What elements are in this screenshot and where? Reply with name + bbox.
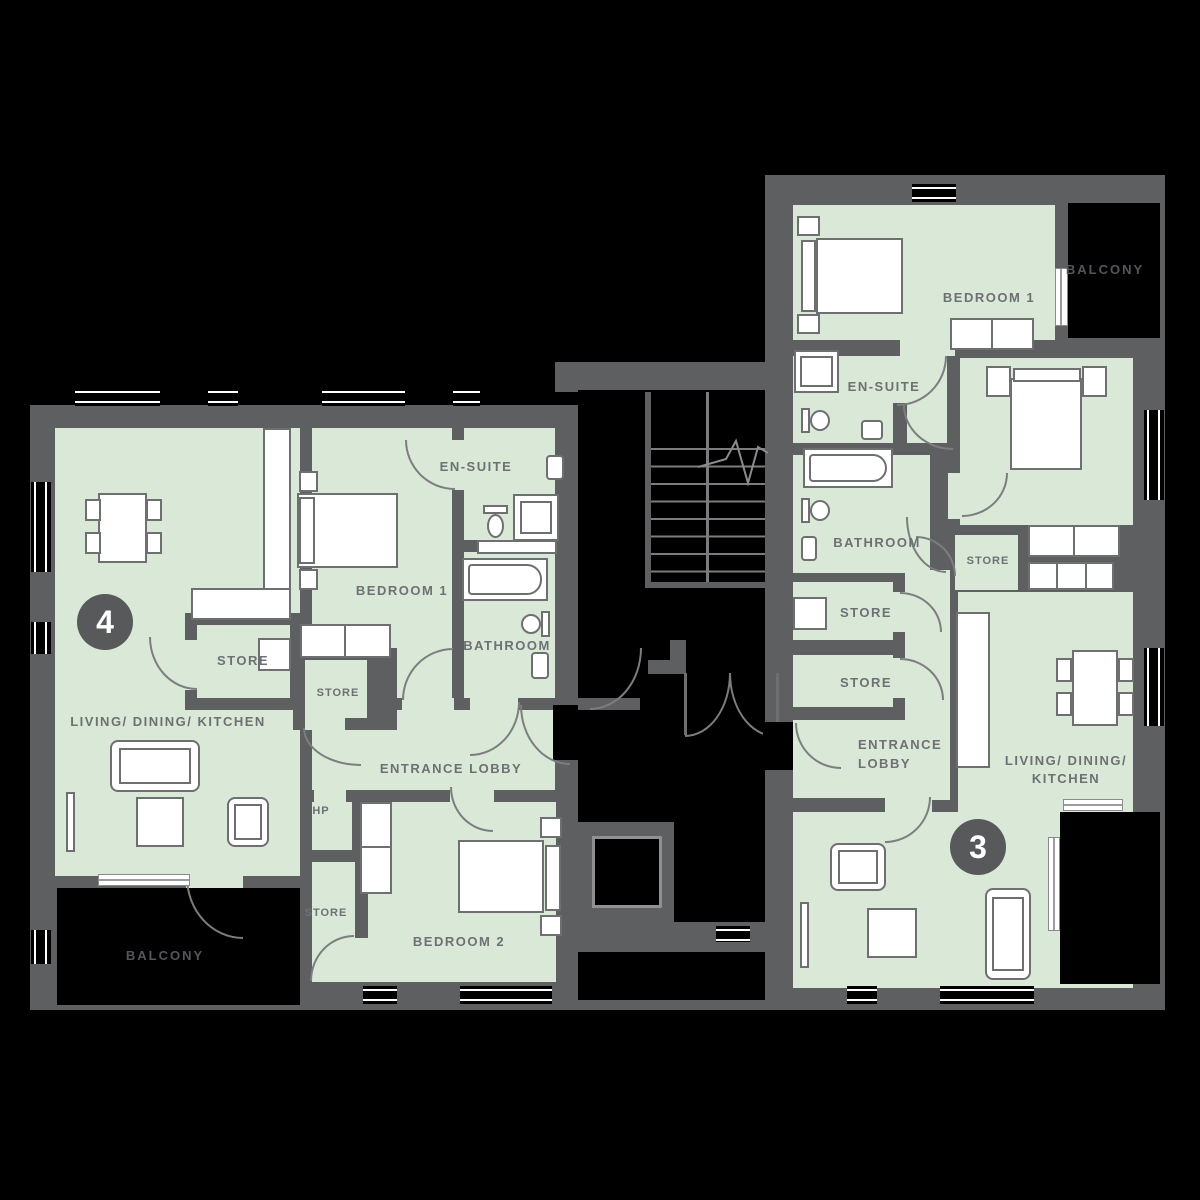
tall-cupboard	[956, 612, 990, 768]
unit-divider	[1085, 564, 1087, 588]
unit-badge-3: 3	[950, 819, 1006, 875]
room-label-bathroom-unit4: BATHROOM	[463, 638, 551, 653]
toilet-bowl	[487, 514, 504, 538]
bedside-table	[1082, 366, 1107, 397]
wall-segment	[648, 660, 686, 674]
bed-pillow	[1013, 368, 1081, 382]
unit-divider	[1056, 564, 1058, 588]
bedside-table	[797, 216, 820, 236]
dining-table	[98, 493, 147, 563]
window	[716, 926, 750, 942]
door-opening	[900, 340, 955, 356]
sink	[531, 652, 549, 679]
door-opening	[355, 938, 368, 982]
sink	[546, 455, 564, 480]
wardrobe-divider	[344, 626, 346, 656]
balcony-unit4	[57, 888, 300, 1005]
glazed-door-sill	[1063, 799, 1123, 811]
sofa-seat	[992, 897, 1024, 971]
unit-badge-4: 4	[77, 594, 133, 650]
double-bed	[458, 840, 544, 913]
bedside-table	[540, 817, 562, 838]
bedside-table	[986, 366, 1011, 397]
room-label-lobby-unit3-line1: ENTRANCE	[858, 737, 942, 752]
bed-pillow	[801, 240, 816, 312]
store-unit	[793, 597, 827, 630]
tv-unit	[66, 792, 75, 852]
window	[322, 388, 405, 406]
wall-segment	[555, 362, 767, 392]
room-label-bedroom1-unit3: BEDROOM 1	[943, 290, 1035, 305]
chair	[1056, 692, 1072, 716]
room-label-lobby-unit3-line2: LOBBY	[858, 756, 911, 771]
armchair-seat	[234, 804, 262, 840]
wardrobe-divider	[1073, 527, 1075, 555]
room-label-living-unit4: LIVING/ DINING/ KITCHEN	[70, 714, 266, 729]
chair	[1118, 658, 1134, 682]
door-opening	[948, 473, 962, 519]
window	[1144, 410, 1164, 500]
bath-tub	[468, 564, 542, 595]
window	[847, 986, 877, 1004]
bed-pillow	[299, 497, 315, 564]
window	[75, 388, 160, 406]
bed-pillow	[545, 845, 561, 911]
wall-segment	[555, 922, 793, 952]
stair-break-line	[698, 437, 768, 489]
door-opening	[314, 790, 346, 802]
sink	[801, 536, 817, 561]
vanity-shelf	[477, 540, 557, 554]
room-label-store3-unit4: STORE	[305, 907, 348, 919]
coffee-table	[136, 797, 184, 847]
shower-tray	[800, 356, 833, 387]
chair	[1118, 692, 1134, 716]
toilet-bowl	[810, 410, 830, 431]
staircase	[645, 392, 765, 588]
room-label-living-unit3-line1: LIVING/ DINING/	[1005, 753, 1127, 768]
kitchen-units	[1028, 562, 1114, 590]
room-label-bedroom2-unit4: BEDROOM 2	[413, 934, 505, 949]
sofa-seat	[119, 748, 191, 784]
bedside-table	[299, 569, 318, 590]
room-label-store-c-unit3: STORE	[840, 675, 892, 690]
toilet-cistern	[483, 505, 508, 514]
wardrobe	[360, 802, 392, 894]
window	[912, 184, 956, 202]
sink	[861, 420, 883, 440]
bedside-table	[540, 915, 562, 936]
double-bed	[816, 238, 903, 314]
room-label-lobby-unit4: ENTRANCE LOBBY	[380, 761, 522, 776]
chair	[85, 532, 101, 554]
tv-unit	[800, 902, 809, 968]
balcony-label-unit3: BALCONY	[1066, 262, 1144, 277]
window	[31, 930, 51, 964]
chair	[1056, 658, 1072, 682]
chair	[146, 532, 162, 554]
toilet-cistern	[541, 611, 550, 637]
glazed-door-sill	[98, 874, 190, 886]
toilet-cistern	[801, 498, 810, 523]
toilet-bowl	[521, 614, 541, 634]
floor-plan: 4 LIVING/ DINING/ KITCHEN BEDROOM 1 EN-S…	[0, 0, 1200, 1200]
wall-segment	[775, 660, 793, 674]
window	[940, 986, 1034, 1004]
wardrobe-divider	[362, 846, 390, 848]
coffee-table	[867, 908, 917, 958]
window	[460, 986, 552, 1004]
shower-tray	[520, 501, 552, 534]
kitchen-counter	[191, 588, 291, 620]
room-label-store1-unit4: STORE	[217, 653, 269, 668]
room-label-hp-unit4: HP	[312, 805, 329, 817]
door-opening	[763, 722, 793, 770]
window	[1144, 648, 1164, 726]
window	[363, 986, 397, 1004]
bedside-table	[797, 314, 820, 334]
double-bed	[1010, 378, 1082, 470]
room-label-store2-unit4: STORE	[317, 687, 360, 699]
toilet-bowl	[810, 500, 830, 521]
balcony-bottom-unit3	[1060, 812, 1160, 984]
balcony-label-unit4: BALCONY	[126, 948, 204, 963]
glazed-door-sill	[1048, 837, 1060, 931]
room-label-store-b-unit3: STORE	[840, 605, 892, 620]
room-label-bathroom-unit3: BATHROOM	[833, 535, 921, 550]
bedside-table	[299, 471, 318, 492]
chair	[146, 499, 162, 521]
wardrobe-divider	[991, 320, 993, 348]
window	[31, 482, 51, 572]
bath-tub	[809, 454, 887, 482]
wall-segment	[555, 1000, 793, 1010]
window	[31, 622, 51, 654]
toilet-cistern	[801, 408, 810, 433]
armchair-seat	[838, 850, 878, 884]
window	[208, 388, 238, 406]
dining-table	[1072, 650, 1118, 726]
lift-car	[592, 836, 662, 908]
room-label-ensuite-unit4: EN-SUITE	[440, 459, 513, 474]
room-label-living-unit3-line2: KITCHEN	[1032, 771, 1100, 786]
room-label-store-a-unit3: STORE	[967, 555, 1010, 567]
window	[453, 388, 480, 406]
chair	[85, 499, 101, 521]
room-label-ensuite-unit3: EN-SUITE	[848, 379, 921, 394]
room-label-bedroom1-unit4: BEDROOM 1	[356, 583, 448, 598]
